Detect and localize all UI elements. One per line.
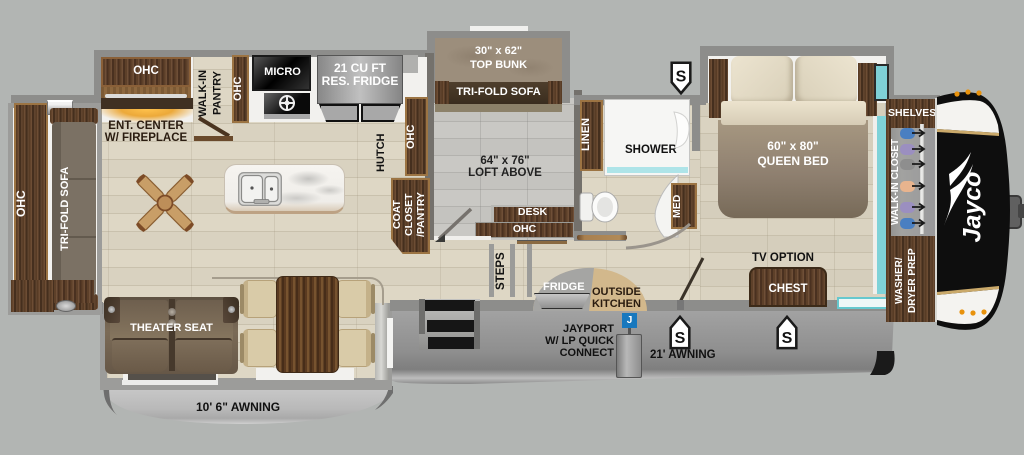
- svg-text:S: S: [676, 67, 687, 85]
- svg-text:S: S: [675, 329, 686, 347]
- svg-text:Jayco: Jayco: [959, 172, 987, 243]
- svg-text:S: S: [782, 329, 793, 347]
